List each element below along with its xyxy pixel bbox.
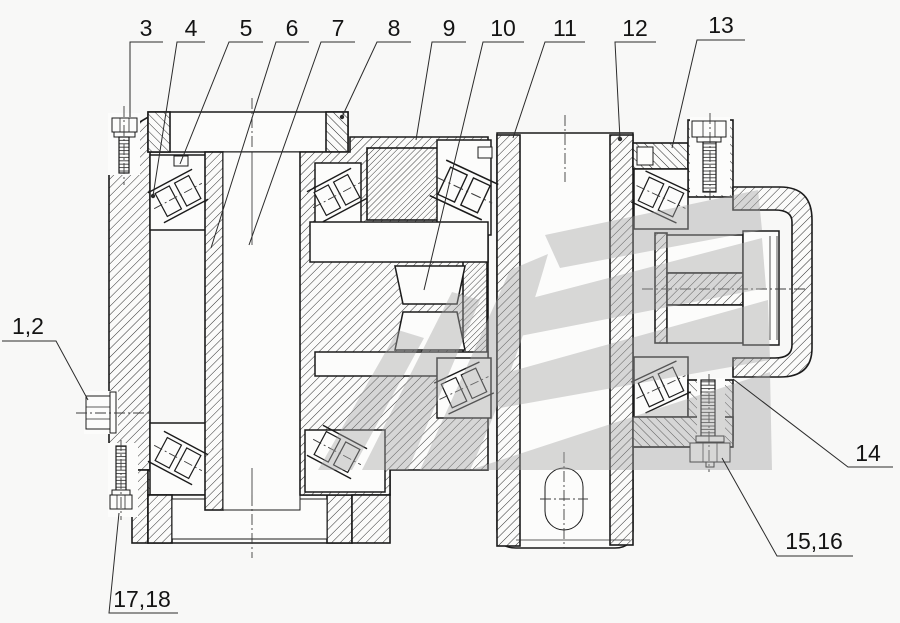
leader-line-8 <box>342 42 411 117</box>
shaft-band <box>310 222 488 262</box>
top-cap-right-wedge <box>326 112 348 152</box>
callout-label-17-18: 17,18 <box>113 586 171 612</box>
bolt-washer <box>114 132 135 137</box>
bolt-top-right <box>690 113 730 200</box>
callout-9: 9 <box>416 15 466 140</box>
callout-12: 12 <box>615 15 656 141</box>
callout-label-1-2: 1,2 <box>12 313 44 339</box>
bolt-head <box>112 118 137 132</box>
leader-line-11 <box>513 42 585 138</box>
leader-line-9 <box>416 42 466 140</box>
callout-label-4: 4 <box>185 15 198 41</box>
callout-8: 8 <box>340 15 411 119</box>
callout-label-14: 14 <box>855 440 881 466</box>
callout-label-9: 9 <box>443 15 456 41</box>
bottom-cap-right-wedge <box>327 495 352 543</box>
callout-label-10: 10 <box>490 15 516 41</box>
callout-1-2: 1,2 <box>2 313 88 400</box>
hub-sleeve <box>205 152 300 510</box>
diagram-canvas: 3 4 5 6 7 8 9 10 <box>0 0 900 623</box>
leader-line-1-2 <box>2 341 88 400</box>
callout-3: 3 <box>130 15 163 117</box>
sleeve-wall <box>205 152 223 510</box>
bolt-head <box>692 121 726 137</box>
callout-label-12: 12 <box>622 15 648 41</box>
leader-line-3 <box>130 42 163 117</box>
bolt-top-left <box>108 106 140 185</box>
bottom-cap-left-wedge <box>148 495 172 543</box>
callout-label-15-16: 15,16 <box>785 528 843 554</box>
axle-bore <box>223 152 300 510</box>
bolt-head <box>86 396 110 429</box>
bolt-shank <box>703 142 716 192</box>
gear-hub-block <box>367 148 438 220</box>
callout-label-3: 3 <box>140 15 153 41</box>
callout-11: 11 <box>513 15 585 138</box>
callout-label-5: 5 <box>240 15 253 41</box>
seal-square <box>478 147 492 158</box>
callout-label-6: 6 <box>286 15 299 41</box>
carrier-flange <box>352 495 390 543</box>
callout-label-7: 7 <box>332 15 345 41</box>
seal-window <box>637 147 653 165</box>
bolt-washer <box>110 392 116 433</box>
callout-label-13: 13 <box>708 12 734 38</box>
assembly-cross-section-drawing: 3 4 5 6 7 8 9 10 <box>0 0 900 623</box>
top-cap-left-wedge <box>148 112 170 152</box>
callout-label-8: 8 <box>388 15 401 41</box>
leader-line-12 <box>615 42 656 139</box>
stud-bottom-left <box>108 440 138 520</box>
bolt-washer <box>697 137 721 142</box>
callout-label-11: 11 <box>553 15 577 41</box>
callout-15-16: 15,16 <box>722 458 853 556</box>
